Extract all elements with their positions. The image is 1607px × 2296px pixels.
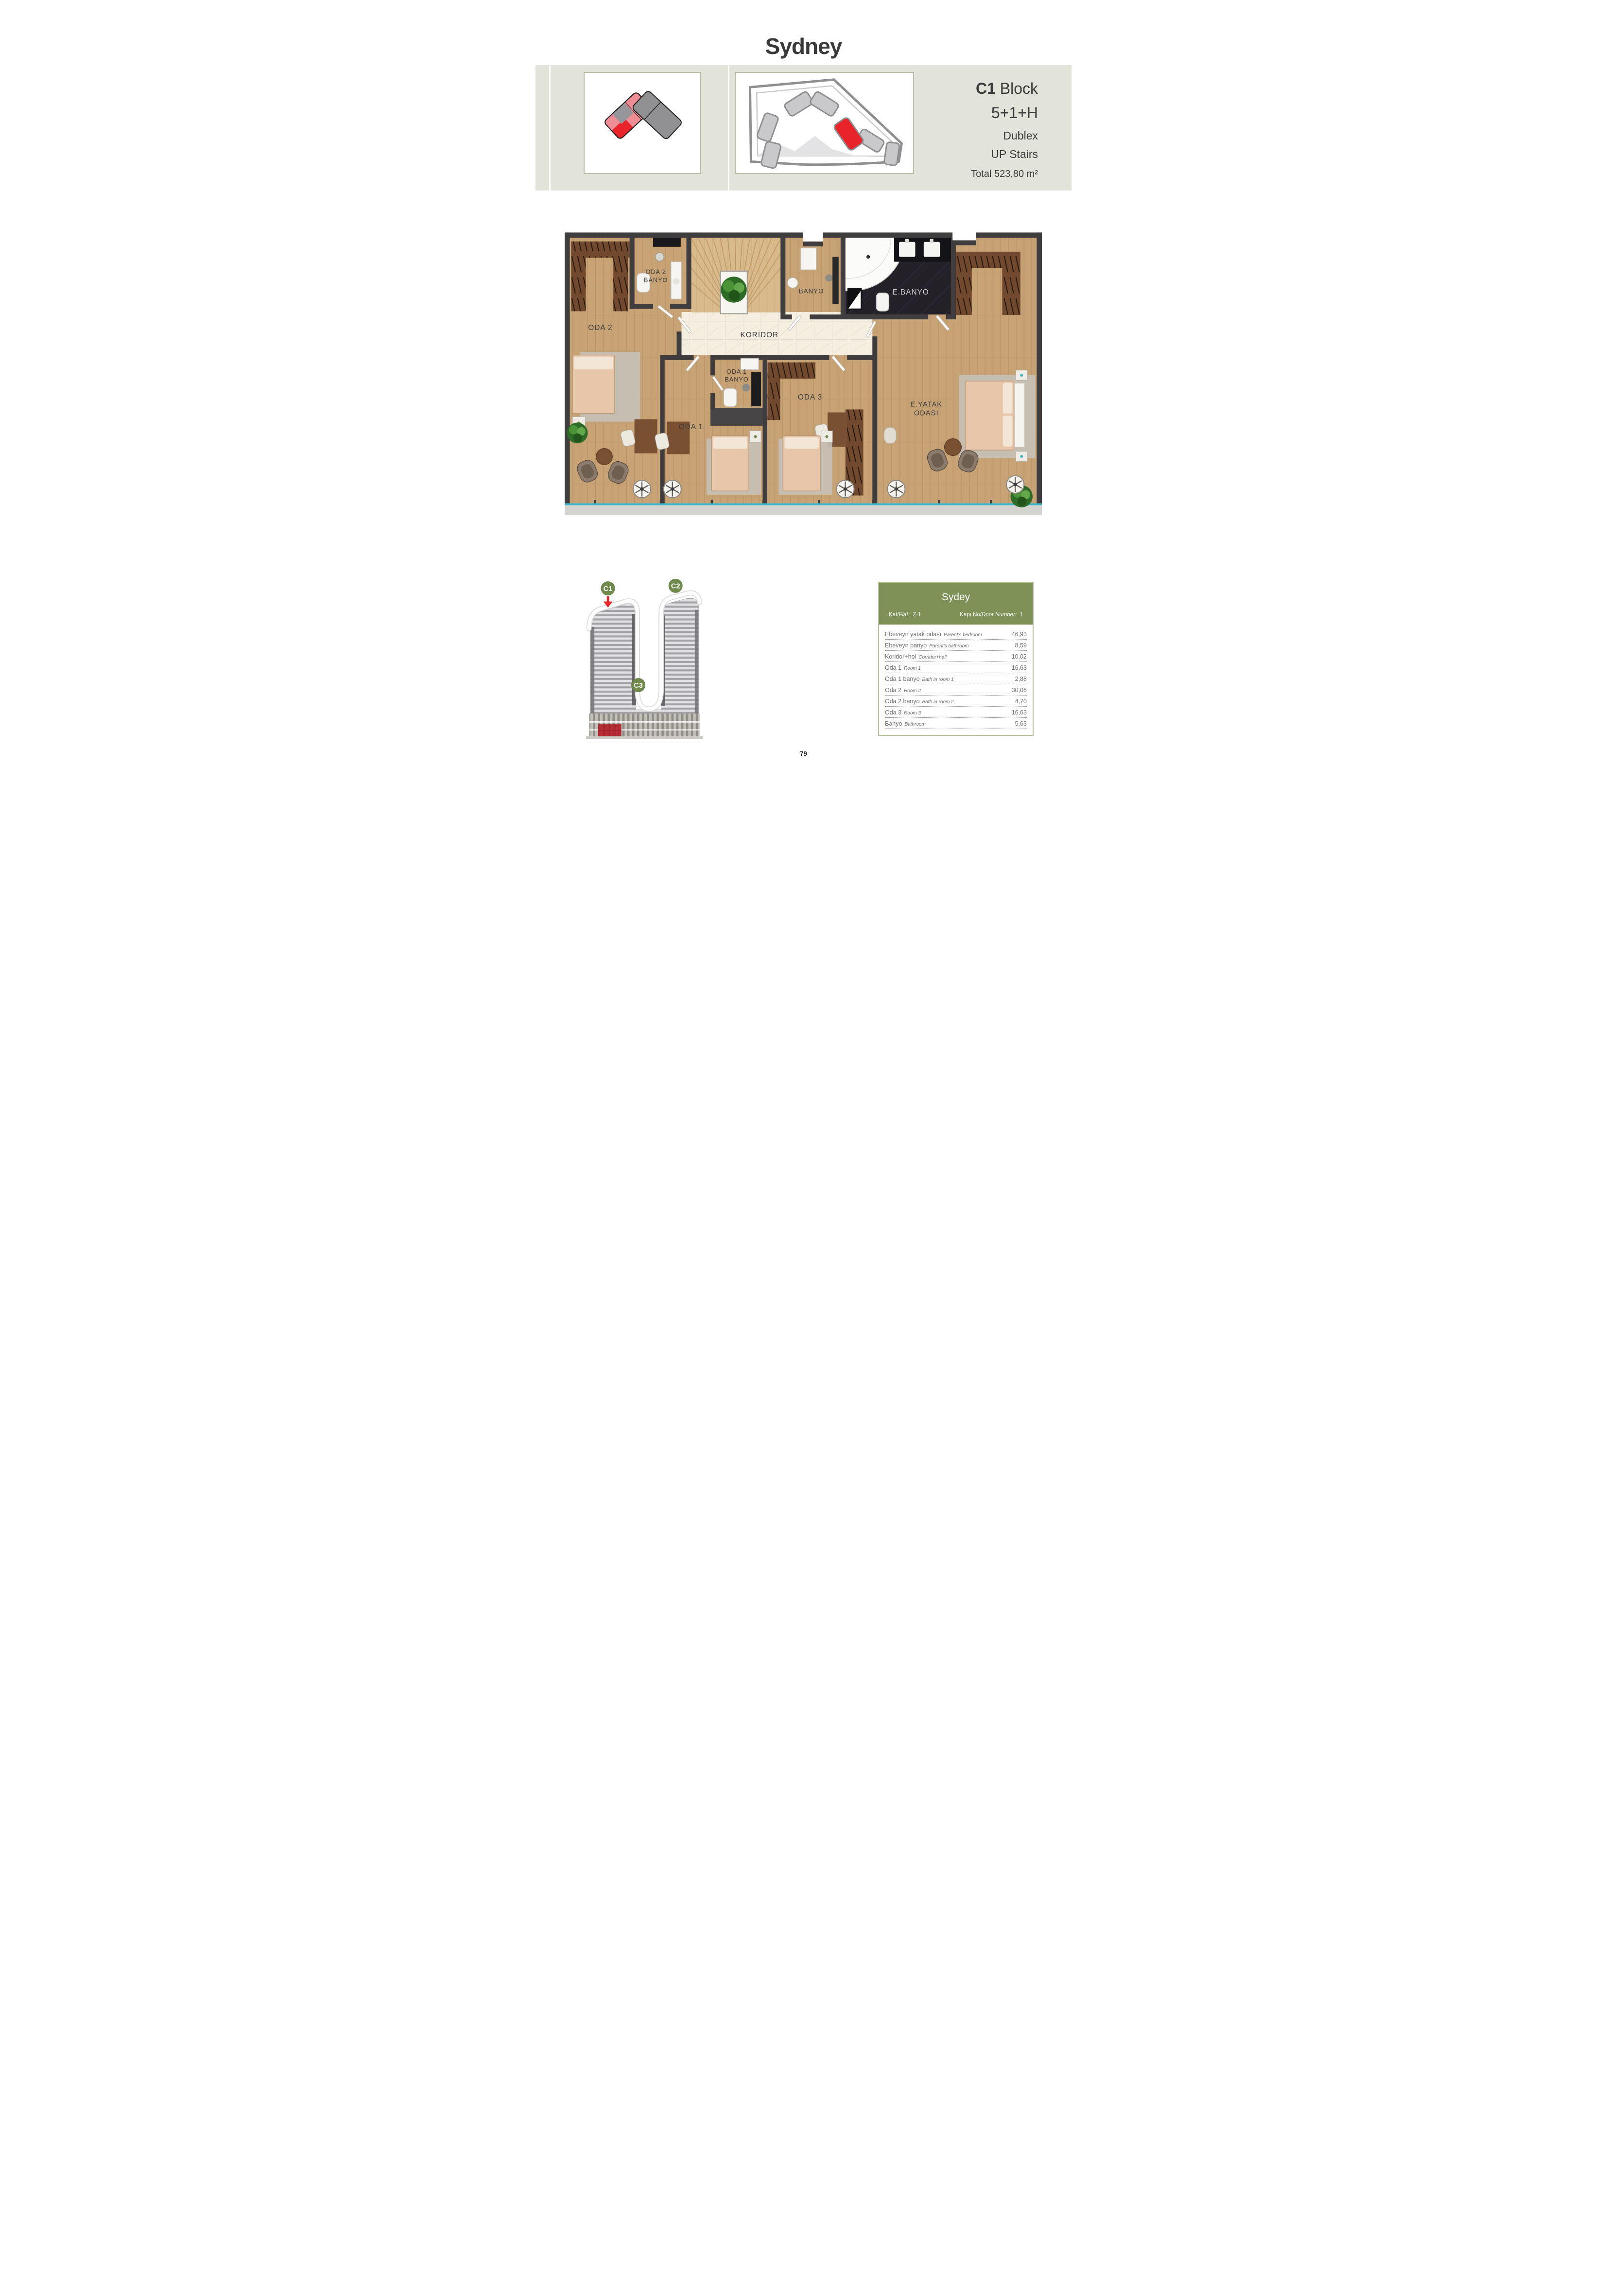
badge-c2-group: C2: [669, 579, 682, 592]
row-value: 46,93: [1012, 631, 1027, 638]
room-label-ebanyo: E.BANYO: [892, 288, 929, 296]
plant-oda2: [567, 423, 588, 444]
door-label-tr: Kapı No/: [960, 612, 982, 618]
badge-c2: C2: [671, 583, 680, 591]
building-svg: C1 C2 C3: [583, 577, 706, 745]
row-label-en: Corridor+hall: [918, 655, 947, 660]
area-row: Ebeveyn banyoParent's bathroom8,59: [885, 640, 1027, 651]
row-label-tr: Oda 1 banyo: [885, 676, 920, 682]
badge-c3-group: C3: [631, 678, 645, 692]
room-label-koridor: KORİDOR: [740, 330, 778, 339]
shaft: [710, 408, 767, 426]
floorplan: ODA 2 ODA 2 BANYO KORİDOR BANYO E.BANYO …: [565, 232, 1042, 515]
room-label-oda2: ODA 2: [588, 324, 612, 332]
bed-master: [959, 370, 1036, 462]
block-word: Block: [1000, 80, 1038, 97]
row-value: 8,59: [1015, 642, 1027, 649]
badge-c1: C1: [604, 585, 613, 593]
row-label-en: Bathroom: [904, 722, 925, 727]
facade-notch: [952, 232, 976, 240]
row-label-tr: Banyo: [885, 720, 902, 727]
room-label-eyatak-2: ODASI: [914, 410, 939, 417]
row-label-en: Room 1: [904, 666, 921, 671]
ground: [586, 736, 703, 739]
area-table-body: Ebeveyn yatak odasıParent's bedroom46,93…: [879, 625, 1033, 735]
unit-info: C1 Block 5+1+H Dublex UP Stairs Total 52…: [971, 80, 1038, 180]
row-value: 10,02: [1012, 653, 1027, 660]
row-value: 2,88: [1015, 676, 1027, 682]
unit-floor: UP Stairs: [971, 148, 1038, 161]
building-rendering: C1 C2 C3: [583, 577, 706, 745]
row-value: 16,63: [1012, 664, 1027, 671]
flat-info: Kat/Flat: Z-1: [889, 612, 921, 618]
area-table-header: Sydey Kat/Flat: Z-1 Kapı No/Door Number:…: [879, 583, 1033, 625]
room-label-oda1-banyo-1: ODA 1: [726, 368, 747, 375]
room-label-oda1: ODA 1: [679, 423, 703, 431]
door-value: 1: [1020, 612, 1023, 618]
room-label-oda3: ODA 3: [798, 393, 822, 401]
room-label-oda2-banyo-1: ODA 2: [646, 269, 666, 276]
row-label-tr: Koridor+hol: [885, 653, 916, 660]
area-row: Oda 1 banyoBath in room 12,88: [885, 673, 1027, 684]
floorplan-svg: ODA 2 ODA 2 BANYO KORİDOR BANYO E.BANYO …: [565, 232, 1042, 515]
area-table-subheader: Kat/Flat: Z-1 Kapı No/Door Number: 1: [883, 612, 1029, 618]
area-table-title: Sydey: [883, 591, 1029, 603]
room-label-oda1-banyo-2: BANYO: [725, 376, 748, 383]
block-line: C1 Block: [971, 80, 1038, 98]
bed-oda2: [572, 352, 640, 430]
siteplan-diagram: [736, 73, 913, 173]
area-row: Oda 1Room 116,63: [885, 662, 1027, 673]
row-value: 30,06: [1012, 687, 1027, 694]
door-label-en: Door Number:: [982, 612, 1017, 618]
row-label-en: Bath in room 1: [922, 677, 954, 682]
header-band: C1 Block 5+1+H Dublex UP Stairs Total 52…: [536, 65, 1071, 191]
area-table: Sydey Kat/Flat: Z-1 Kapı No/Door Number:…: [878, 582, 1034, 736]
row-value: 16,63: [1012, 709, 1027, 716]
plant-landing: [721, 277, 746, 302]
bed-oda3: [778, 431, 832, 495]
page-number: 79: [536, 750, 1071, 757]
balcony-glass: [565, 504, 1042, 505]
desk-oda2: [635, 419, 657, 453]
area-row: Oda 2 banyoBath in room 24,70: [885, 696, 1027, 707]
band-divider: [728, 65, 729, 191]
row-label-en: Room 2: [904, 688, 921, 694]
unit-style: Dublex: [971, 129, 1038, 142]
row-label-tr: Oda 3: [885, 709, 901, 716]
area-row: Oda 2Room 230,06: [885, 684, 1027, 696]
block-footprint-thumbnail: [584, 72, 701, 174]
facade-notch: [803, 232, 823, 241]
room-label-eyatak-1: E.YATAK: [910, 400, 942, 408]
room-label-oda2-banyo-2: BANYO: [644, 277, 668, 283]
row-value: 5,63: [1015, 720, 1027, 727]
area-row: BanyoBathroom5,63: [885, 718, 1027, 729]
unit-type: 5+1+H: [971, 104, 1038, 122]
total-area: Total 523,80 m²: [971, 169, 1038, 180]
block-footprint-diagram: [585, 73, 700, 173]
siteplan-thumbnail: [735, 72, 914, 174]
row-label-en: Parent's bedroom: [944, 632, 982, 638]
page-title: Sydney: [536, 33, 1071, 59]
row-label-tr: Ebeveyn yatak odası: [885, 631, 941, 638]
row-label-en: Room 3: [904, 711, 921, 716]
badge-c3: C3: [634, 682, 643, 690]
block-code: C1: [976, 80, 996, 97]
brochure-page: Sydney: [536, 0, 1071, 765]
row-label-tr: Oda 2 banyo: [885, 698, 920, 705]
badge-c1-group: C1: [601, 582, 615, 595]
row-label-tr: Oda 1: [885, 664, 901, 671]
row-label-en: Bath in room 2: [922, 699, 954, 705]
row-value: 4,70: [1015, 698, 1027, 705]
flat-label-en: Flat:: [899, 612, 909, 618]
balcony-floor: [565, 505, 1042, 515]
door-info: Kapı No/Door Number: 1: [960, 612, 1023, 618]
band-divider: [549, 65, 551, 191]
area-row: Koridor+holCorridor+hall10,02: [885, 651, 1027, 662]
pouf: [884, 427, 896, 443]
area-row: Ebeveyn yatak odasıParent's bedroom46,93: [885, 628, 1027, 640]
bed-oda1: [707, 431, 761, 495]
area-row: Oda 3Room 316,63: [885, 707, 1027, 718]
row-label-tr: Ebeveyn banyo: [885, 642, 927, 649]
flat-value: Z-1: [913, 612, 921, 618]
room-label-banyo: BANYO: [799, 288, 824, 295]
flat-label-tr: Kat/: [889, 612, 899, 618]
podium-band: [589, 721, 699, 722]
row-label-en: Parent's bathroom: [929, 644, 968, 649]
row-label-tr: Oda 2: [885, 687, 901, 694]
